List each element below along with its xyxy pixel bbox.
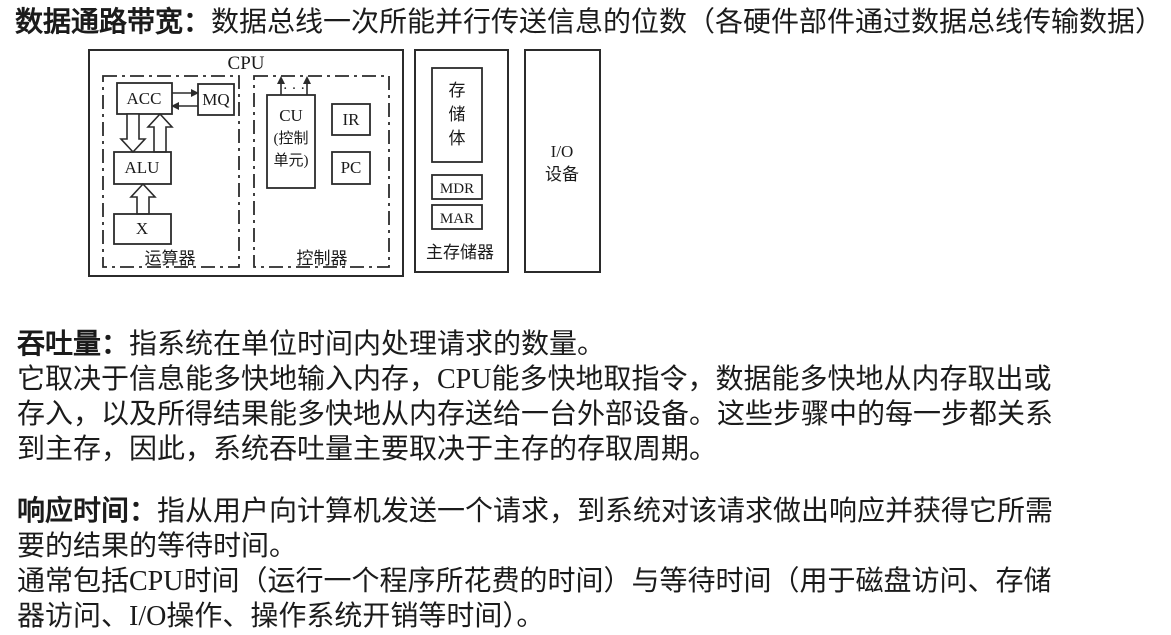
cu-label-line1: CU xyxy=(279,106,303,125)
io-label-line2: 设备 xyxy=(545,165,579,184)
response-line4: 器访问、I/O操作、操作系统开销等时间）。 xyxy=(17,599,1053,634)
cu-section-label: 控制器 xyxy=(297,249,348,268)
response-line1: 响应时间：指从用户向计算机发送一个请求，到系统对该请求做出响应并获得它所需 xyxy=(17,493,1053,529)
alu-section-label: 运算器 xyxy=(145,249,196,268)
throughput-term: 吞吐量： xyxy=(17,328,129,359)
storage-bank-char2: 储 xyxy=(449,105,466,124)
acc-to-alu-hollow-arrow xyxy=(121,114,145,152)
x-register-label: X xyxy=(136,219,148,238)
throughput-line2: 它取决于信息能多快地输入内存，CPU能多快地取指令，数据能多快地从内存取出或 xyxy=(17,362,1053,397)
storage-bank-char1: 存 xyxy=(449,81,466,100)
mar-label: MAR xyxy=(440,211,474,227)
throughput-paragraph: 吞吐量：指系统在单位时间内处理请求的数量。 它取决于信息能多快地输入内存，CPU… xyxy=(17,326,1053,467)
response-line2: 要的结果的等待时间。 xyxy=(17,529,1053,564)
response-intro: 指从用户向计算机发送一个请求，到系统对该请求做出响应并获得它所需 xyxy=(157,496,1053,527)
slide-page: 数据通路带宽：数据总线一次所能并行传送信息的位数（各硬件部件通过数据总线传输数据… xyxy=(0,0,1171,635)
alu-to-acc-hollow-arrow xyxy=(148,114,172,152)
throughput-line4: 到主存，因此，系统吞吐量主要取决于主存的存取周期。 xyxy=(17,432,1053,467)
cpu-box-label: CPU xyxy=(228,53,265,74)
response-line3: 通常包括CPU时间（运行一个程序所花费的时间）与等待时间（用于磁盘访问、存储 xyxy=(17,564,1053,599)
acc-label: ACC xyxy=(127,89,162,108)
response-term: 响应时间： xyxy=(17,495,157,526)
storage-bank-char3: 体 xyxy=(449,129,466,148)
io-label-line1: I/O xyxy=(551,142,574,161)
throughput-line3: 存入，以及所得结果能多快地从内存送给一台外部设备。这些步骤中的每一步都关系 xyxy=(17,397,1053,432)
main-memory-label: 主存储器 xyxy=(426,243,494,262)
cu-label-line2: (控制 xyxy=(274,130,309,147)
response-time-paragraph: 响应时间：指从用户向计算机发送一个请求，到系统对该请求做出响应并获得它所需 要的… xyxy=(17,493,1053,634)
mq-label: MQ xyxy=(202,90,229,109)
throughput-intro: 指系统在单位时间内处理请求的数量。 xyxy=(129,329,605,360)
ir-label: IR xyxy=(343,110,361,129)
io-device-box xyxy=(525,50,600,272)
x-to-alu-hollow-arrow xyxy=(131,184,155,214)
cu-label-line3: 单元) xyxy=(274,152,309,169)
throughput-line1: 吞吐量：指系统在单位时间内处理请求的数量。 xyxy=(17,326,1053,362)
mdr-label: MDR xyxy=(440,181,474,197)
alu-label: ALU xyxy=(125,158,160,177)
pc-label: PC xyxy=(341,158,362,177)
